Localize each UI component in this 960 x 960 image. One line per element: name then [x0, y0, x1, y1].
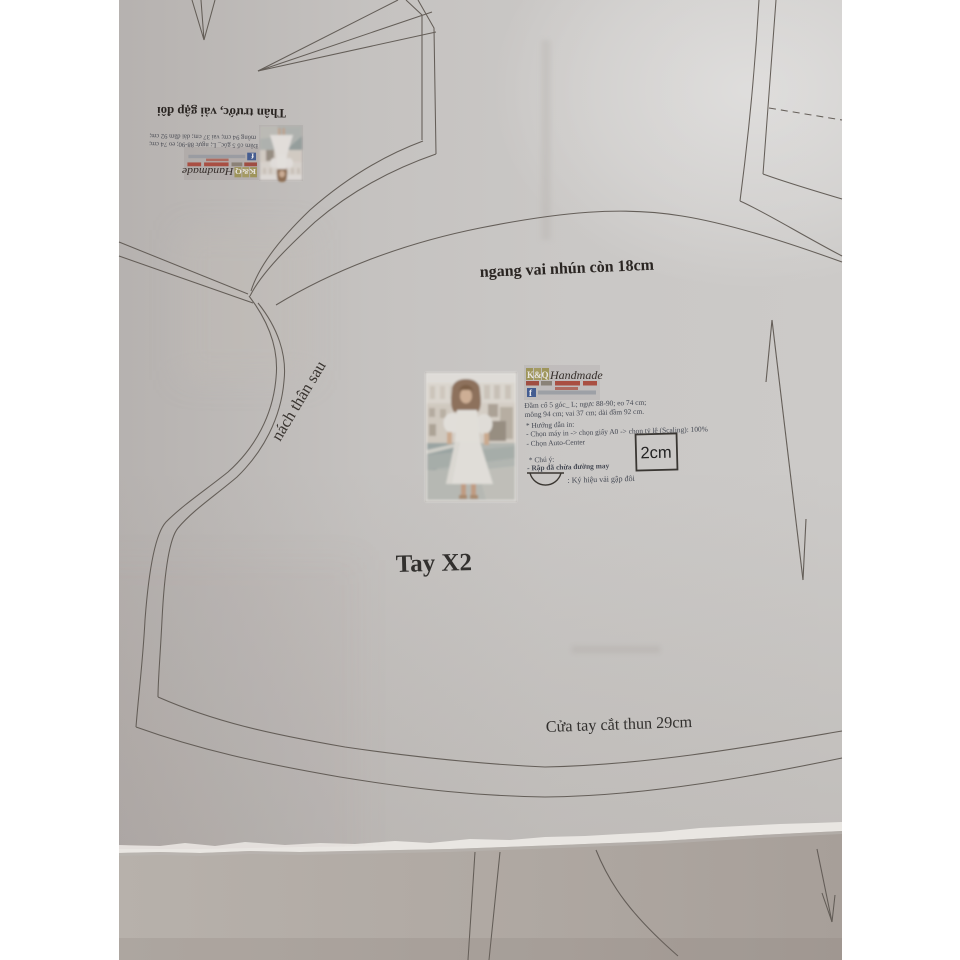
svg-text:2cm: 2cm	[640, 444, 672, 463]
svg-text:Tay X2: Tay X2	[395, 549, 472, 578]
svg-text:: Ký hiệu vải gập đôi: : Ký hiệu vải gập đôi	[567, 474, 635, 485]
svg-text:- Chọn Auto-Center: - Chọn Auto-Center	[526, 437, 585, 448]
svg-text:Thân trước, vải gập đôi: Thân trước, vải gập đôi	[157, 104, 287, 120]
